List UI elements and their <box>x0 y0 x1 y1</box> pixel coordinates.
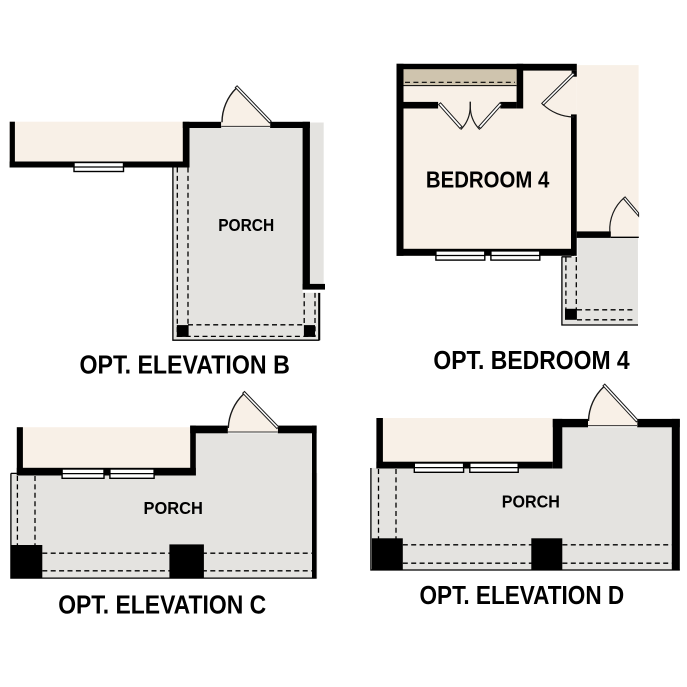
svg-text:OPT. BEDROOM 4: OPT. BEDROOM 4 <box>433 347 630 375</box>
svg-text:PORCH: PORCH <box>144 498 203 518</box>
svg-text:OPT. ELEVATION B: OPT. ELEVATION B <box>80 351 290 379</box>
svg-text:OPT. ELEVATION C: OPT. ELEVATION C <box>58 592 266 620</box>
svg-text:BEDROOM 4: BEDROOM 4 <box>426 166 550 192</box>
svg-text:PORCH: PORCH <box>218 215 274 235</box>
svg-text:PORCH: PORCH <box>502 492 560 512</box>
svg-text:OPT. ELEVATION D: OPT. ELEVATION D <box>420 582 625 610</box>
